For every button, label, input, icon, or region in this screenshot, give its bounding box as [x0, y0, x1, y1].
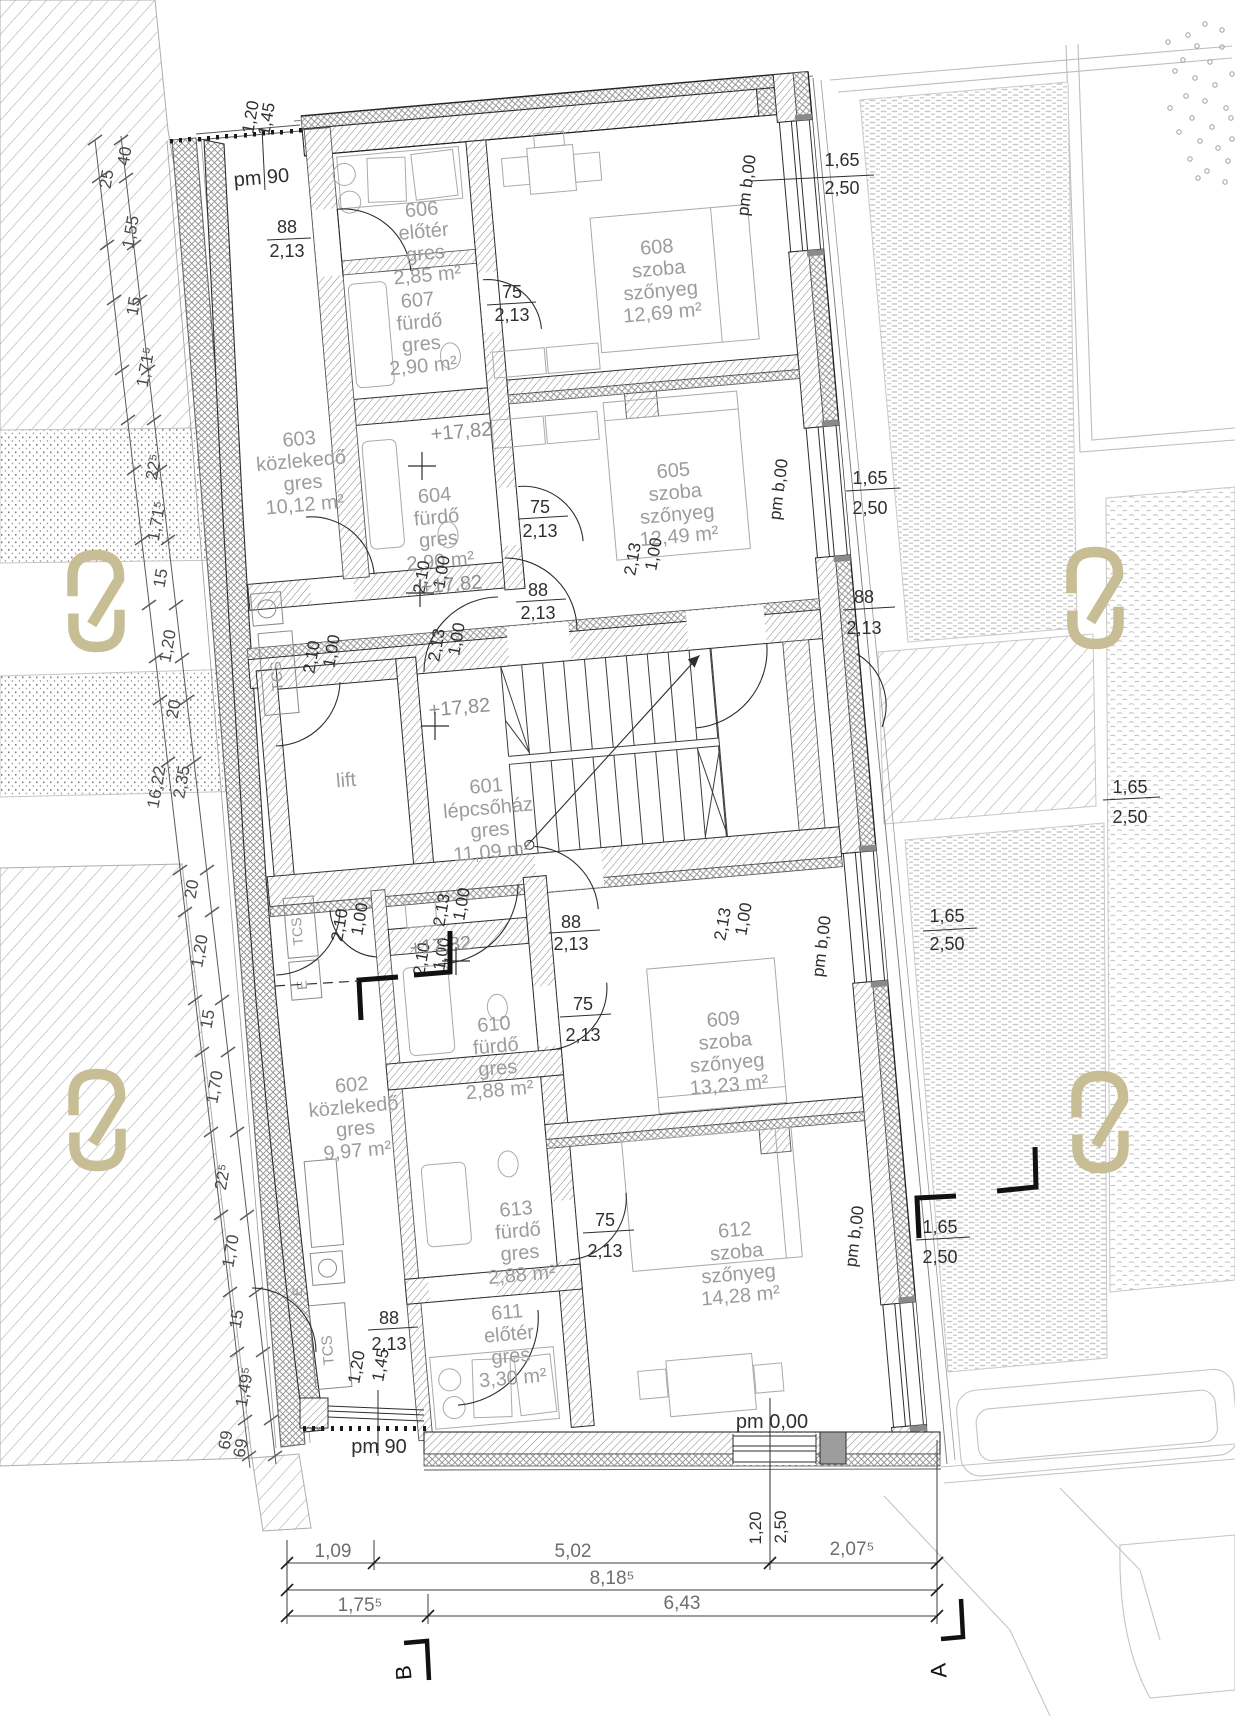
svg-text:88: 88 [379, 1308, 399, 1328]
svg-text:75: 75 [573, 994, 593, 1014]
svg-text:88: 88 [277, 217, 297, 237]
svg-text:612: 612 [717, 1218, 752, 1243]
svg-text:69: 69 [230, 1437, 252, 1459]
svg-text:601: 601 [469, 774, 504, 799]
svg-text:15: 15 [123, 295, 145, 317]
svg-text:6,43: 6,43 [664, 1593, 701, 1614]
svg-text:602: 602 [334, 1073, 369, 1098]
svg-text:2,13: 2,13 [587, 1241, 622, 1261]
svg-text:TCS: TCS [267, 661, 287, 692]
svg-text:2,07⁵: 2,07⁵ [830, 1539, 875, 1560]
svg-text:2,50: 2,50 [1112, 807, 1147, 827]
svg-text:2,13: 2,13 [565, 1025, 600, 1045]
svg-text:1,65: 1,65 [824, 150, 859, 170]
svg-text:B: B [390, 1664, 416, 1681]
svg-text:603: 603 [282, 427, 317, 452]
svg-text:75: 75 [502, 282, 522, 302]
svg-text:75: 75 [530, 497, 550, 517]
svg-text:40: 40 [114, 145, 136, 167]
svg-text:1,65: 1,65 [852, 468, 887, 488]
svg-text:2,50: 2,50 [929, 934, 964, 954]
svg-text:2,50: 2,50 [852, 498, 887, 518]
svg-text:15: 15 [197, 1008, 219, 1030]
svg-text:TCS: TCS [318, 1335, 338, 1366]
svg-text:1,20: 1,20 [746, 1511, 765, 1544]
svg-text:5,02: 5,02 [555, 1541, 592, 1562]
svg-text:15: 15 [150, 567, 172, 589]
svg-text:2,13: 2,13 [522, 521, 557, 541]
svg-text:1,09: 1,09 [315, 1541, 352, 1562]
svg-text:609: 609 [706, 1007, 741, 1032]
svg-text:604: 604 [417, 483, 452, 508]
svg-text:2,13: 2,13 [494, 305, 529, 325]
svg-text:A: A [925, 1662, 951, 1679]
svg-text:8,18⁵: 8,18⁵ [590, 1568, 635, 1589]
svg-text:88: 88 [854, 587, 874, 607]
svg-text:2,50: 2,50 [824, 178, 859, 198]
svg-text:2,50: 2,50 [771, 1510, 790, 1543]
svg-text:2,50: 2,50 [922, 1247, 957, 1267]
svg-text:2,13: 2,13 [520, 603, 555, 623]
svg-text:TCS: TCS [288, 917, 306, 946]
svg-text:pm 90: pm 90 [351, 1436, 407, 1458]
svg-text:2,13: 2,13 [553, 934, 588, 954]
svg-text:15: 15 [226, 1308, 248, 1330]
svg-text:605: 605 [656, 458, 691, 483]
svg-text:611: 611 [490, 1300, 524, 1325]
svg-text:608: 608 [639, 235, 674, 260]
svg-text:20: 20 [163, 698, 185, 720]
svg-text:pm 0,00: pm 0,00 [736, 1411, 808, 1433]
svg-text:607: 607 [400, 288, 435, 313]
svg-text:606: 606 [404, 197, 439, 222]
svg-text:1,65: 1,65 [1112, 777, 1147, 797]
svg-text:610: 610 [476, 1012, 511, 1037]
svg-text:1,65: 1,65 [922, 1217, 957, 1237]
svg-text:2,13: 2,13 [846, 618, 881, 638]
svg-text:1,65: 1,65 [929, 906, 964, 926]
svg-text:lift: lift [335, 769, 357, 793]
svg-text:88: 88 [528, 580, 548, 600]
svg-text:25: 25 [96, 168, 118, 190]
svg-text:75: 75 [595, 1210, 615, 1230]
svg-text:1,75⁵: 1,75⁵ [338, 1595, 383, 1616]
svg-text:E: E [289, 1286, 306, 1297]
svg-text:2,13: 2,13 [269, 241, 304, 261]
svg-text:613: 613 [499, 1197, 534, 1222]
svg-text:20: 20 [181, 878, 203, 900]
svg-text:88: 88 [561, 912, 581, 932]
